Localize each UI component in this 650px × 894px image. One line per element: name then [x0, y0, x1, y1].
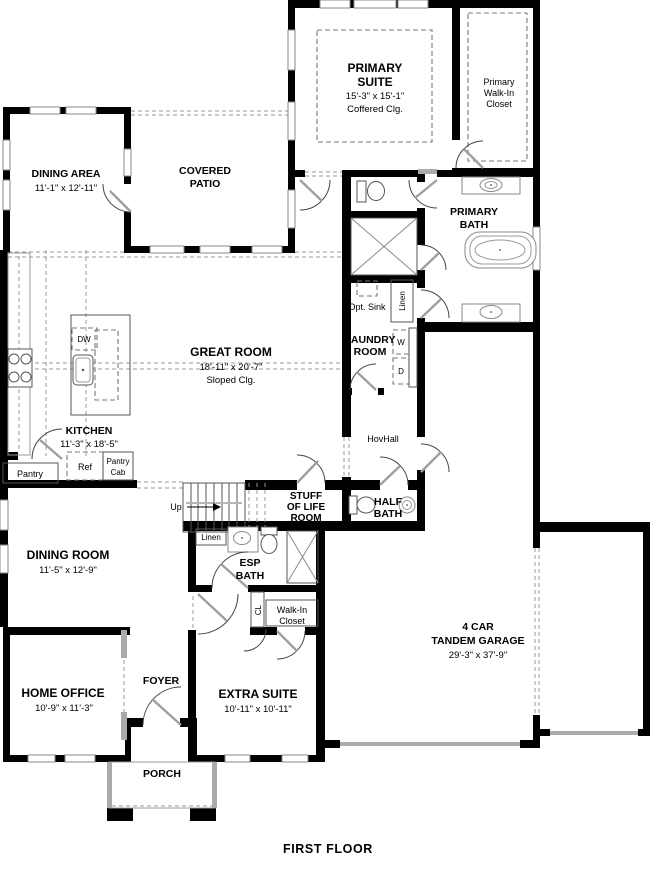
floor-plan-page: DINING AREA 11'-1" x 12'-11" COVERED PAT… [0, 0, 650, 894]
room-label-primary-closet-2: Walk-In [484, 88, 514, 98]
kitchen-island [71, 315, 130, 415]
dims-primary-suite: 15'-3" x 15'-1" [346, 91, 404, 102]
room-label-laundry-2: ROOM [354, 346, 387, 358]
room-label-home-office: HOME OFFICE [21, 686, 104, 700]
primary-vanity-bottom [462, 304, 520, 322]
label-washer: W [397, 338, 405, 347]
door-pantry [32, 429, 62, 459]
room-label-stuff-3: ROOM [290, 513, 321, 524]
label-linen-esp: Linen [201, 533, 221, 542]
dims-extra-suite: 10'-11" x 10'-11" [224, 704, 292, 715]
half-bath-toilet [349, 496, 375, 514]
label-pantry: Pantry [17, 469, 44, 479]
plan-title: FIRST FLOOR [283, 842, 373, 856]
room-label-kitchen: KITCHEN [66, 425, 113, 437]
door-stuff-of-life [297, 455, 325, 483]
label-linen-laundry: Linen [398, 291, 407, 311]
room-label-esp-bath-2: BATH [236, 570, 264, 582]
door-hall-garage [421, 444, 449, 472]
primary-toilet [357, 181, 385, 202]
room-label-covered-patio-1: COVERED [179, 165, 231, 177]
opt-sink-box [357, 281, 377, 296]
door-laundry [350, 364, 376, 390]
freestanding-tub [465, 232, 536, 268]
label-pantry-cab-2: Cab [111, 468, 126, 477]
garage-door-bay [550, 731, 638, 735]
room-label-laundry-1: LAUNDRY [345, 334, 396, 346]
garage-door-main [340, 742, 520, 746]
esp-vanity [228, 527, 258, 552]
laundry-cabinet [409, 328, 417, 387]
esp-shower [287, 531, 318, 583]
floor-plan: DINING AREA 11'-1" x 12'-11" COVERED PAT… [0, 0, 650, 894]
dims-kitchen: 11'-3" x 18'-5" [60, 439, 118, 450]
primary-vanity-top [462, 177, 520, 194]
labels: DINING AREA 11'-1" x 12'-11" COVERED PAT… [17, 61, 525, 856]
room-label-half-bath-2: BATH [374, 508, 402, 520]
room-label-primary-closet-3: Closet [486, 99, 512, 109]
door-half-bath [380, 457, 408, 485]
note-primary-suite-clg: Coffered Clg. [347, 104, 403, 115]
room-label-garage-1: 4 CAR [462, 621, 494, 633]
cased-opening [121, 630, 127, 658]
label-pantry-cab-1: Pantry [106, 457, 129, 466]
room-label-dining-area: DINING AREA [31, 168, 100, 180]
dims-home-office: 10'-9" x 11'-3" [35, 703, 93, 714]
door-primary-shower [421, 245, 446, 270]
room-label-walk-in-1: Walk-In [277, 605, 307, 615]
dims-garage: 29'-3" x 37'-9" [449, 650, 507, 661]
room-label-primary-bath-2: BATH [460, 219, 488, 231]
dims-dining-area: 11'-1" x 12'-11" [35, 183, 97, 194]
label-dryer: D [398, 367, 404, 376]
cased-opening [121, 712, 127, 740]
room-label-covered-patio-2: PATIO [190, 178, 221, 190]
door-extra-suite-hall [198, 594, 238, 634]
room-label-foyer: FOYER [143, 675, 180, 687]
room-label-stuff-1: STUFF [290, 491, 322, 502]
door-primary-closet [456, 141, 483, 168]
room-label-porch: PORCH [143, 768, 181, 780]
room-label-stuff-2: OF LIFE [287, 502, 326, 513]
room-label-primary-suite-2: SUITE [357, 75, 392, 89]
room-label-walk-in-2: Closet [279, 616, 305, 626]
esp-toilet [261, 527, 277, 554]
dims-dining-room: 11'-5" x 12'-9" [39, 565, 97, 576]
room-label-esp-bath-1: ESP [239, 557, 260, 569]
closet-shelving-dashed [468, 13, 527, 161]
label-cl: CL [254, 604, 263, 615]
kitchen-counter [8, 253, 32, 455]
door-suite-entry [300, 180, 330, 210]
room-label-dining-room: DINING ROOM [27, 548, 110, 562]
dims-great-room: 18'-11" x 20'-7" [199, 362, 262, 373]
room-label-extra-suite: EXTRA SUITE [219, 687, 298, 701]
label-hovhall: HovHall [367, 434, 399, 444]
room-label-half-bath-1: HALF [374, 496, 403, 508]
door-patio-dining [103, 184, 131, 212]
cased-opening [418, 169, 437, 174]
door-water-closet [409, 180, 437, 208]
room-label-garage-2: TANDEM GARAGE [431, 635, 524, 647]
label-dw: DW [77, 335, 91, 344]
room-label-primary-bath-1: PRIMARY [450, 206, 498, 218]
label-opt-sink: Opt. Sink [348, 302, 386, 312]
door-bath-laundry [421, 290, 449, 318]
label-ref: Ref [78, 462, 93, 472]
door-front-entry [143, 687, 181, 725]
primary-shower [351, 218, 417, 275]
room-label-primary-closet-1: Primary [484, 77, 515, 87]
door-walk-in-closet [277, 631, 305, 659]
room-label-primary-suite-1: PRIMARY [348, 61, 403, 75]
room-label-great-room: GREAT ROOM [190, 345, 272, 359]
note-great-room-clg: Sloped Clg. [206, 375, 255, 386]
label-up: Up [170, 502, 182, 512]
